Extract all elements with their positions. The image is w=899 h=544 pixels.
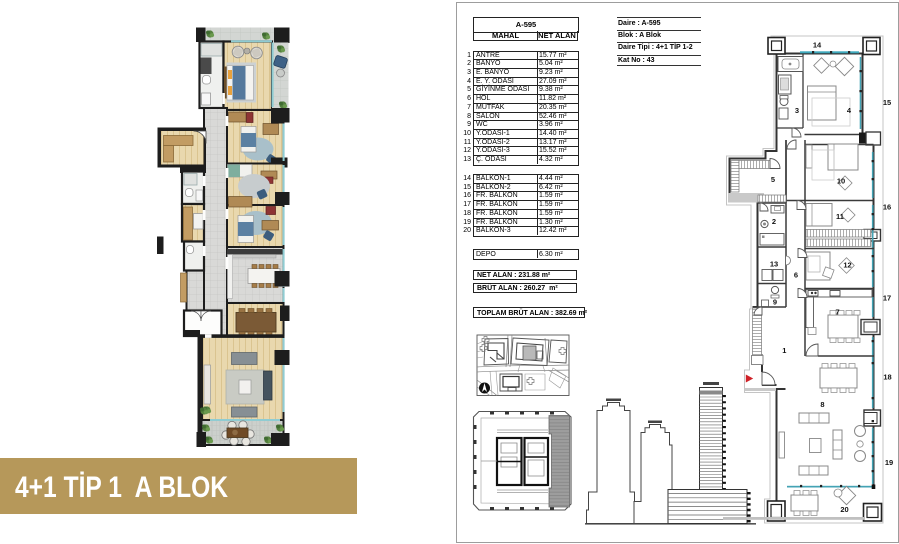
svg-text:7: 7 [836,307,840,316]
svg-text:3: 3 [795,106,799,115]
svg-text:13: 13 [770,260,778,269]
svg-text:6: 6 [794,271,798,280]
svg-text:11: 11 [836,212,844,221]
svg-text:5: 5 [771,175,775,184]
svg-text:10: 10 [837,177,845,186]
svg-text:12: 12 [843,261,851,270]
svg-text:17: 17 [883,294,891,303]
svg-text:18: 18 [883,373,891,382]
svg-text:16: 16 [883,203,891,212]
svg-text:19: 19 [885,458,893,467]
svg-text:4: 4 [847,106,852,115]
svg-text:8: 8 [820,400,824,409]
svg-text:1: 1 [782,346,786,355]
svg-text:15: 15 [883,98,891,107]
svg-text:14: 14 [813,41,822,50]
svg-text:2: 2 [772,217,776,226]
svg-text:20: 20 [840,505,848,514]
svg-text:9: 9 [773,297,777,306]
